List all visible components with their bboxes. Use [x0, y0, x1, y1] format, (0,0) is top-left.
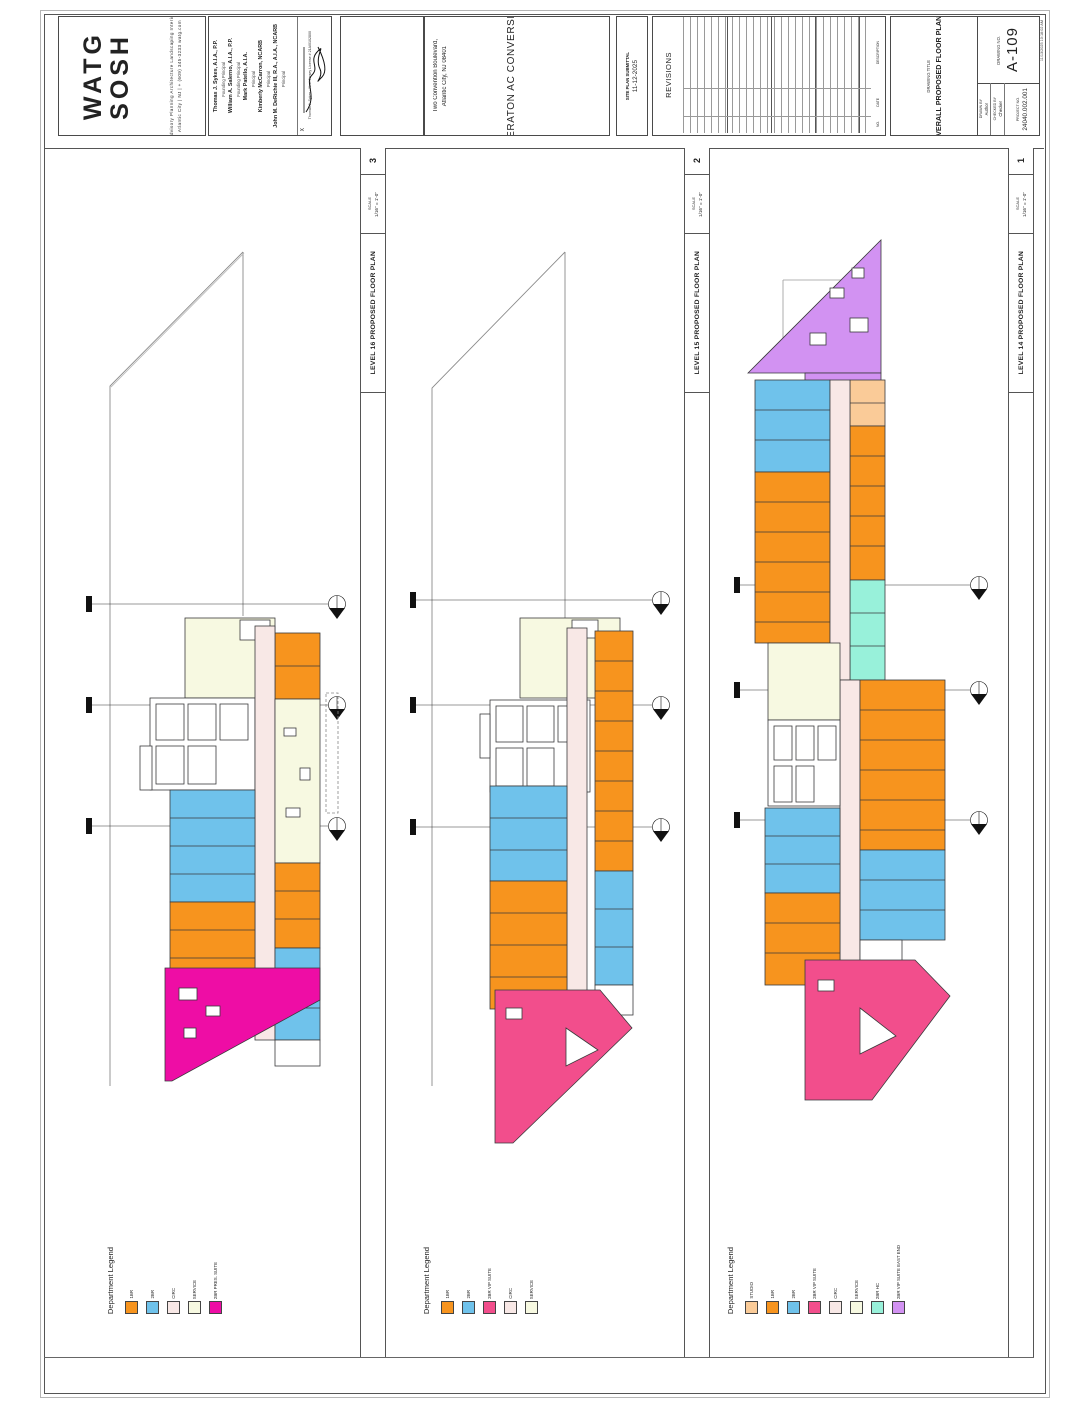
legend-item: 2BR: [144, 1228, 161, 1314]
legend-item-label: 2BR VIP SUITE: [487, 1268, 492, 1299]
drawing-area-bottom-border: [44, 1357, 1034, 1358]
legend-item: SERVICE: [523, 1228, 540, 1314]
legend-item: STUDIO: [743, 1228, 760, 1314]
legend-item: 1BR: [439, 1228, 456, 1314]
principal-title: Founding Principal: [221, 55, 226, 97]
project-no-label: PROJECT NO.: [1016, 97, 1020, 121]
principal-title: Principal: [266, 64, 271, 87]
principal-name: Kimberly McCarron, NCARB: [258, 40, 264, 112]
firm-logo-line1: WATG: [82, 31, 106, 120]
principal-title: Principal: [281, 64, 286, 87]
principal-name: John M. DeRichie III, R.A., A.I.A., NCAR…: [273, 24, 279, 128]
viewport-scale: SCALE1/16" = 1'-0": [685, 175, 709, 234]
legend-item-label: 2BR HC: [875, 1283, 880, 1299]
legend-swatch: [125, 1301, 138, 1314]
drawing-no-label: DRAWING NO.: [996, 36, 1001, 65]
legend-item-label: 2BR PRES. SUITE: [213, 1262, 218, 1299]
legend-item: SERVICE: [186, 1228, 203, 1314]
building-level16: [140, 618, 338, 1081]
signature-icon: [298, 17, 332, 135]
legend-level16: Department Legend1BR2BRCIRCSERVICE2BR PR…: [106, 1228, 224, 1314]
legend-item-label: 2BR VIP SUITE: [812, 1268, 817, 1299]
firm-contact: Atlantic City | NJ | + (609) 345-3233 wa…: [177, 20, 182, 132]
legend-item: 2BR VIP SUITE: [806, 1228, 823, 1314]
legend-swatch: [766, 1301, 779, 1314]
legend-swatch: [787, 1301, 800, 1314]
legend-level15: Department Legend1BR2BR2BR VIP SUITECIRC…: [422, 1228, 540, 1314]
legend-item-label: CIRC: [833, 1288, 838, 1299]
project-address-line1: Two Convention Boulevard,: [433, 39, 439, 112]
legend-item: CIRC: [165, 1228, 182, 1314]
legend-item: 1BR: [764, 1228, 781, 1314]
submittal-label: SITE PLAN SUBMITTAL: [625, 52, 630, 100]
legend-swatch: [209, 1301, 222, 1314]
legend-item-label: STUDIO: [749, 1282, 754, 1299]
legend-level14: Department LegendSTUDIO1BR2BR2BR VIP SUI…: [726, 1228, 907, 1314]
viewport-title: LEVEL 14 PROPOSED FLOOR PLAN: [1009, 234, 1033, 393]
viewport-scale: SCALE1/16" = 1'-0": [361, 175, 385, 234]
legend-item-label: CIRC: [171, 1288, 176, 1299]
legend-item-label: 2BR: [466, 1290, 471, 1299]
legend-swatch: [850, 1301, 863, 1314]
principal-name: Mark Patello, A.I.A.: [243, 52, 249, 100]
legend-item: CIRC: [827, 1228, 844, 1314]
titleblock: DRAWING TITLE OVERALL PROPOSED FLOOR PLA…: [890, 16, 1040, 136]
revisions-title: REVISIONS: [664, 52, 673, 98]
legend-swatch: [525, 1301, 538, 1314]
legend-swatch: [462, 1301, 475, 1314]
principal-title: Principal: [251, 64, 256, 87]
floor-plan-level-16: [44, 148, 360, 1357]
viewport-title: LEVEL 16 PROPOSED FLOOR PLAN: [361, 234, 385, 393]
legend-swatch: [483, 1301, 496, 1314]
revisions-col-date: DATE: [876, 98, 880, 107]
legend-item: 2BR VIP SUITE: [481, 1228, 498, 1314]
viewport-header-level15: 2 SCALE1/16" = 1'-0" LEVEL 15 PROPOSED F…: [684, 148, 710, 1357]
legend-item-label: 2BR: [791, 1290, 796, 1299]
drawing-no: A-109: [1004, 27, 1021, 72]
drawn-by-value: Author: [984, 103, 989, 115]
firm-logo-block: WATG SOSH Advisory Planning Architecture…: [58, 16, 206, 136]
legend-item-label: SERVICE: [854, 1280, 859, 1299]
page: { "palette": { "1br": "#F7941E", "2br": …: [0, 0, 1088, 1408]
legend-item-label: SERVICE: [529, 1280, 534, 1299]
drawing-title: OVERALL PROPOSED FLOOR PLANS: [934, 16, 943, 136]
floor-plan-level-14: [710, 148, 1008, 1357]
project-name: SHERATON AC CONVERSION: [506, 16, 517, 136]
legend-item: 2BR: [785, 1228, 802, 1314]
legend-item: 2BR VIP SUITE EAST END: [890, 1228, 907, 1314]
legend-title: Department Legend: [422, 1247, 431, 1314]
project-block: Two Convention Boulevard, Atlantic City,…: [424, 16, 610, 136]
legend-item: 1BR: [123, 1228, 140, 1314]
legend-swatch: [146, 1301, 159, 1314]
firm-logo-line2: SOSH: [109, 33, 133, 120]
principals-list: Thomas J. Sykes, A.I.A., P.P.Founding Pr…: [209, 17, 301, 135]
legend-item-label: 1BR: [445, 1290, 450, 1299]
viewport-header-level14: 1 SCALE1/16" = 1'-0" LEVEL 14 PROPOSED F…: [1008, 148, 1034, 1357]
viewport-number: 3: [361, 148, 385, 175]
project-address-line2: Atlantic City, NJ 08401: [442, 46, 448, 106]
viewport-number: 1: [1009, 148, 1033, 175]
legend-item: 2BR: [460, 1228, 477, 1314]
firm-tagline: Advisory Planning Architecture Landscapi…: [169, 16, 174, 136]
drawn-by-label: DRAWN BY: [979, 99, 983, 118]
revisions-col-no: NO.: [876, 121, 880, 127]
viewport-number: 2: [685, 148, 709, 175]
principals-block: Thomas J. Sykes, A.I.A., P.P.Founding Pr…: [208, 16, 332, 136]
legend-swatch: [441, 1301, 454, 1314]
checked-by-value: Checker: [998, 101, 1003, 117]
viewport-title: LEVEL 15 PROPOSED FLOOR PLAN: [685, 234, 709, 393]
legend-swatch: [745, 1301, 758, 1314]
legend-item-label: 2BR VIP SUITE EAST END: [896, 1245, 901, 1299]
legend-item-label: 2BR: [150, 1290, 155, 1299]
legend-swatch: [808, 1301, 821, 1314]
checked-by-label: CHECKED BY: [993, 97, 997, 120]
legend-swatch: [188, 1301, 201, 1314]
legend-swatch: [829, 1301, 842, 1314]
principal-name: William A. Salerno, A.I.A., P.P.: [228, 38, 234, 113]
submittal-date: 11-12-2025: [632, 60, 639, 92]
principal-name: Thomas J. Sykes, A.I.A., P.P.: [213, 40, 219, 112]
signature-x-label: X: [300, 128, 306, 131]
legend-swatch: [871, 1301, 884, 1314]
submittal-block: SITE PLAN SUBMITTAL 11-12-2025: [616, 16, 648, 136]
principal-title: Founding Principal: [236, 55, 241, 97]
revisions-col-description: DESCRIPTION: [876, 41, 880, 64]
legend-item: SERVICE: [848, 1228, 865, 1314]
viewport-scale: SCALE1/16" = 1'-0": [1009, 175, 1033, 234]
revisions-column-labels: DESCRIPTION DATE NO.: [872, 17, 884, 133]
signature-block: X Thomas J. Sykes · New Jersey License #…: [297, 17, 332, 135]
signature-caption: Thomas J. Sykes · New Jersey License # 2…: [308, 31, 312, 119]
legend-title: Department Legend: [106, 1247, 115, 1314]
legend-item: 2BR HC: [869, 1228, 886, 1314]
legend-swatch: [167, 1301, 180, 1314]
drawing-title-label: DRAWING TITLE: [926, 60, 931, 93]
building-level14: [748, 240, 950, 1100]
viewport-header-level16: 3 SCALE1/16" = 1'-0" LEVEL 16 PROPOSED F…: [360, 148, 386, 1357]
legend-swatch: [504, 1301, 517, 1314]
legend-item: CIRC: [502, 1228, 519, 1314]
plot-stamp: 11/13/2025 10:18:02 AM: [1040, 20, 1044, 61]
legend-item-label: 1BR: [770, 1290, 775, 1299]
seal-box-empty: [340, 16, 424, 136]
legend-item-label: CIRC: [508, 1288, 513, 1299]
legend-swatch: [892, 1301, 905, 1314]
legend-item-label: SERVICE: [192, 1280, 197, 1299]
floor-plan-level-15: [386, 148, 684, 1357]
building-level15: [480, 618, 633, 1143]
project-no-value: 24040.002.001: [1022, 88, 1029, 131]
legend-item-label: 1BR: [129, 1290, 134, 1299]
revisions-block: REVISIONS DESCRIPTION DATE NO.: [652, 16, 886, 136]
legend-item: 2BR PRES. SUITE: [207, 1228, 224, 1314]
legend-title: Department Legend: [726, 1247, 735, 1314]
